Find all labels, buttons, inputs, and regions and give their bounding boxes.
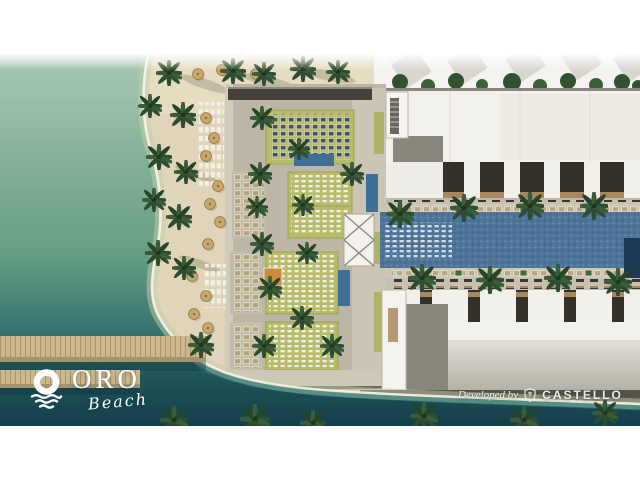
- palm-tree: [136, 92, 164, 120]
- door: [388, 308, 398, 342]
- palm-tree: [290, 192, 316, 218]
- beach-club-deck: [225, 84, 386, 390]
- palm-tree: [286, 136, 312, 162]
- window-bays: [443, 162, 640, 198]
- palm-tree: [140, 186, 168, 214]
- palm-tree: [542, 262, 575, 295]
- logo-script: Beach: [87, 391, 148, 412]
- palm-tree: [338, 160, 366, 188]
- palm-tree: [514, 190, 547, 223]
- palm-tree: [602, 266, 635, 299]
- palm-tree: [172, 158, 200, 186]
- palm-tree: [288, 304, 316, 332]
- stair-core: [390, 98, 399, 134]
- plunge-pool: [366, 174, 378, 212]
- palm-tree: [244, 194, 270, 220]
- palm-tree: [294, 240, 320, 266]
- oro-beach-logo: ORO Beach: [28, 366, 148, 410]
- palm-tree: [250, 332, 278, 360]
- building-south: [360, 278, 640, 404]
- palm-tree: [168, 100, 198, 130]
- top-fade: [0, 54, 640, 70]
- palm-tree: [170, 254, 198, 282]
- palm-tree: [384, 198, 417, 231]
- plunge-pool: [338, 270, 350, 306]
- top-letterbox: [0, 0, 640, 54]
- palm-tree: [448, 192, 481, 225]
- palm-tree: [164, 202, 194, 232]
- palm-tree: [186, 330, 216, 360]
- building-north: [386, 88, 640, 212]
- palm-tree: [578, 190, 611, 223]
- palm-tree: [144, 142, 174, 172]
- aerial-masterplan-render: ORO Beach Developed by CASTELLO: [0, 0, 640, 480]
- palm-tree: [256, 274, 284, 302]
- palm-tree: [406, 262, 439, 295]
- palm-tree: [474, 264, 507, 297]
- developer-credit: Developed by CASTELLO: [458, 388, 623, 402]
- credit-name: CASTELLO: [542, 388, 623, 402]
- castello-crest-icon: [524, 388, 536, 402]
- bottom-letterbox: [0, 426, 640, 480]
- logo-wordmark: ORO: [72, 366, 148, 392]
- palm-tree: [143, 238, 173, 268]
- palm-tree: [248, 104, 276, 132]
- canopy-pavilion: [344, 214, 374, 266]
- in-pool-loungers: [384, 222, 452, 258]
- palm-tree: [246, 160, 274, 188]
- palm-tree: [318, 332, 346, 360]
- credit-prefix: Developed by: [458, 389, 518, 401]
- palm-tree: [248, 230, 276, 258]
- sunset-over-waves-icon: [28, 368, 65, 410]
